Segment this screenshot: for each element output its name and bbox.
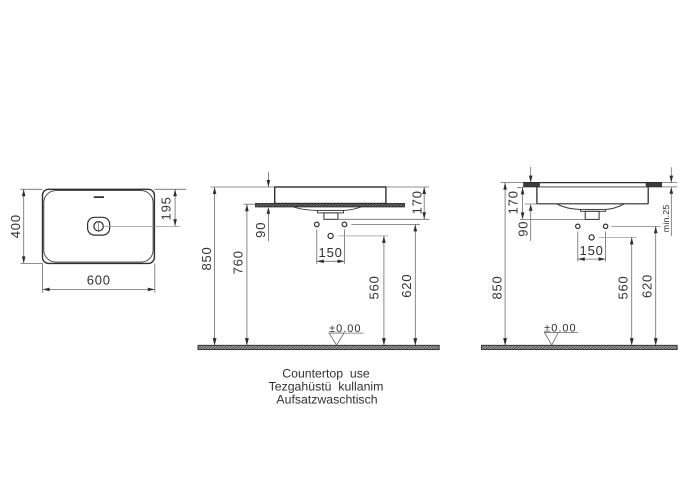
svg-text:195: 195 — [158, 196, 173, 220]
svg-text:760: 760 — [230, 250, 245, 274]
svg-text:Aufsatzwaschtisch: Aufsatzwaschtisch — [276, 393, 377, 407]
svg-text:620: 620 — [399, 274, 414, 298]
svg-text:150: 150 — [580, 243, 604, 258]
svg-text:600: 600 — [87, 272, 111, 287]
svg-text:560: 560 — [615, 275, 630, 299]
svg-text:170: 170 — [506, 190, 521, 214]
svg-text:min.25: min.25 — [661, 205, 671, 233]
svg-text:170: 170 — [409, 190, 424, 214]
svg-text:620: 620 — [639, 274, 654, 298]
svg-text:Tezgahüstü kullanim: Tezgahüstü kullanim — [269, 380, 384, 394]
svg-text:850: 850 — [489, 275, 504, 299]
svg-text:560: 560 — [366, 275, 381, 299]
svg-text:400: 400 — [8, 214, 23, 238]
svg-text:90: 90 — [515, 221, 530, 237]
svg-text:90: 90 — [253, 222, 268, 238]
svg-text:Countertop use: Countertop use — [282, 367, 370, 381]
svg-text:850: 850 — [199, 246, 214, 270]
svg-text:150: 150 — [319, 245, 343, 260]
